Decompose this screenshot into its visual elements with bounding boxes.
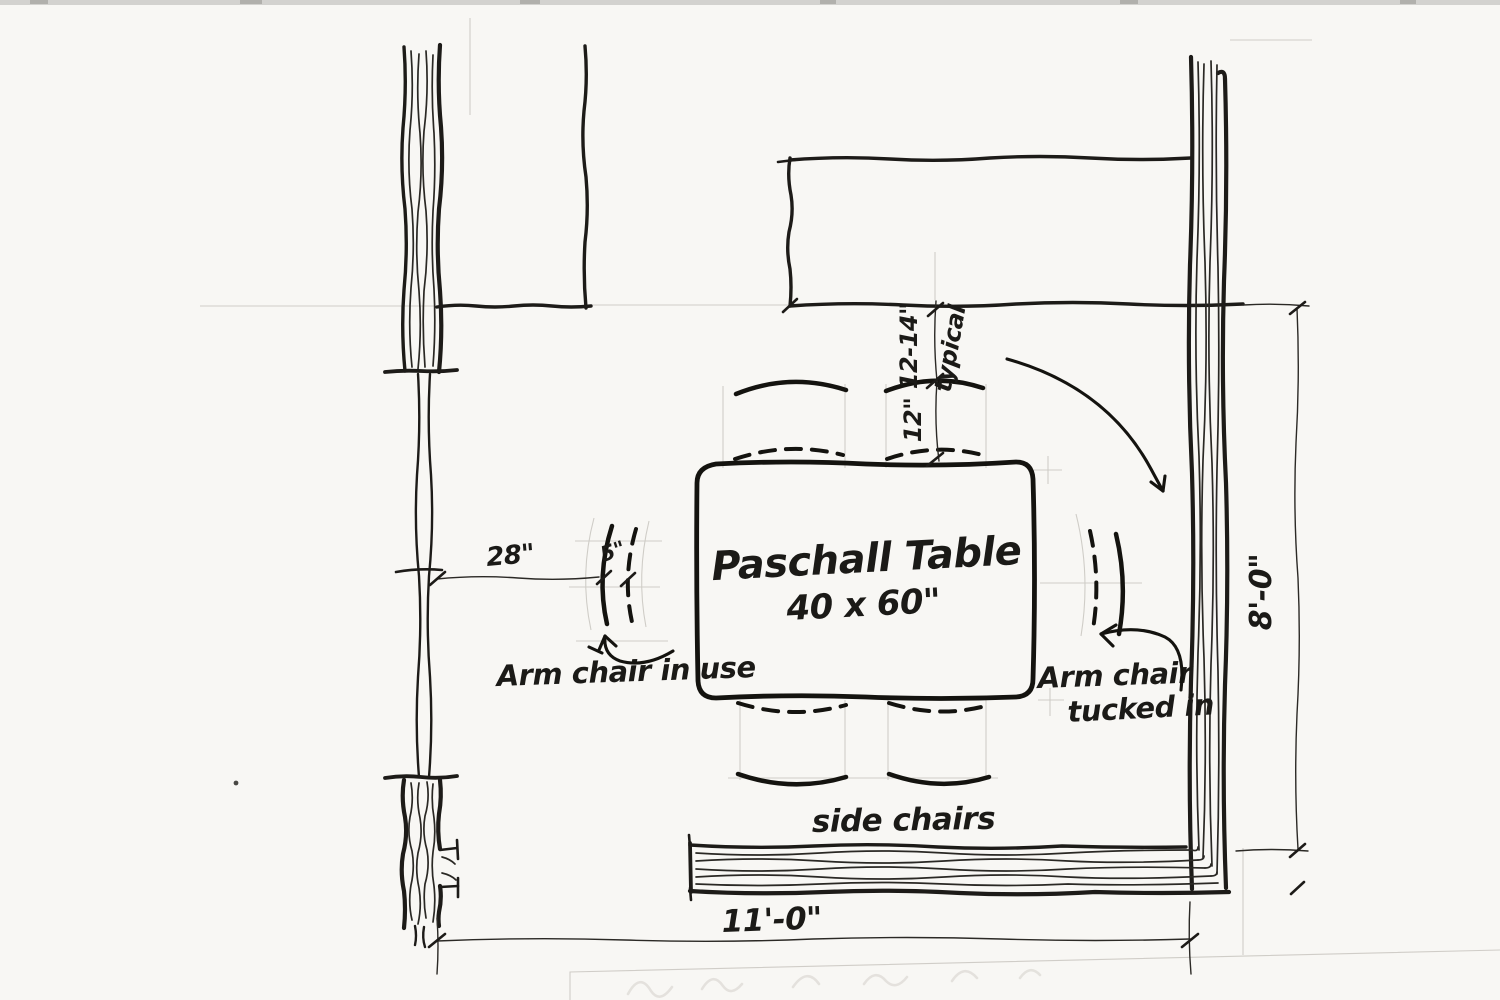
dim-12-14-label: 12-14"	[895, 303, 923, 389]
arm-chair-tucked-label-2: tucked in	[1067, 687, 1215, 729]
scanned-floor-plan-sketch: Paschall Table 40 x 60" 28" 5"	[0, 0, 1500, 1000]
dim-28-label: 28"	[485, 539, 536, 573]
side-chair-top-left	[735, 382, 846, 459]
note-side-chairs: side chairs	[812, 801, 996, 840]
pencil-guidelines	[200, 18, 1500, 1000]
side-chairs-label: side chairs	[812, 801, 996, 840]
side-chair-bottom-right	[889, 703, 989, 784]
dimension-room-depth: 8'-0"	[1236, 302, 1308, 894]
dimension-room-width: 11'-0"	[429, 901, 1198, 974]
dim-12-label: 12"	[899, 398, 927, 442]
right-wall	[1189, 57, 1227, 889]
table-name-label: Paschall Table	[710, 528, 1022, 590]
note-arm-chair-in-use: Arm chair in use	[494, 636, 756, 693]
left-wall-upper	[385, 45, 457, 372]
left-wall-thin	[396, 374, 442, 777]
ghost-writing	[628, 970, 1040, 996]
dim-8ft-label: 8'-0"	[1244, 554, 1279, 631]
counter-outline	[778, 157, 1309, 313]
note-arm-chair-tucked: Arm chair tucked in	[1035, 625, 1215, 729]
bottom-wall	[689, 835, 1229, 900]
dimension-wall-to-chair: 28"	[430, 539, 599, 585]
ink-speck	[234, 781, 239, 786]
arm-chair-in-use-label: Arm chair in use	[494, 650, 756, 693]
floor-plan-drawing: Paschall Table 40 x 60" 28" 5"	[0, 0, 1500, 1000]
side-chair-bottom-left	[738, 703, 846, 784]
interior-partition	[437, 46, 591, 308]
dim-11ft-label: 11'-0"	[721, 901, 822, 940]
table-size-label: 40 x 60"	[785, 581, 942, 629]
left-wall-lower	[385, 776, 458, 947]
